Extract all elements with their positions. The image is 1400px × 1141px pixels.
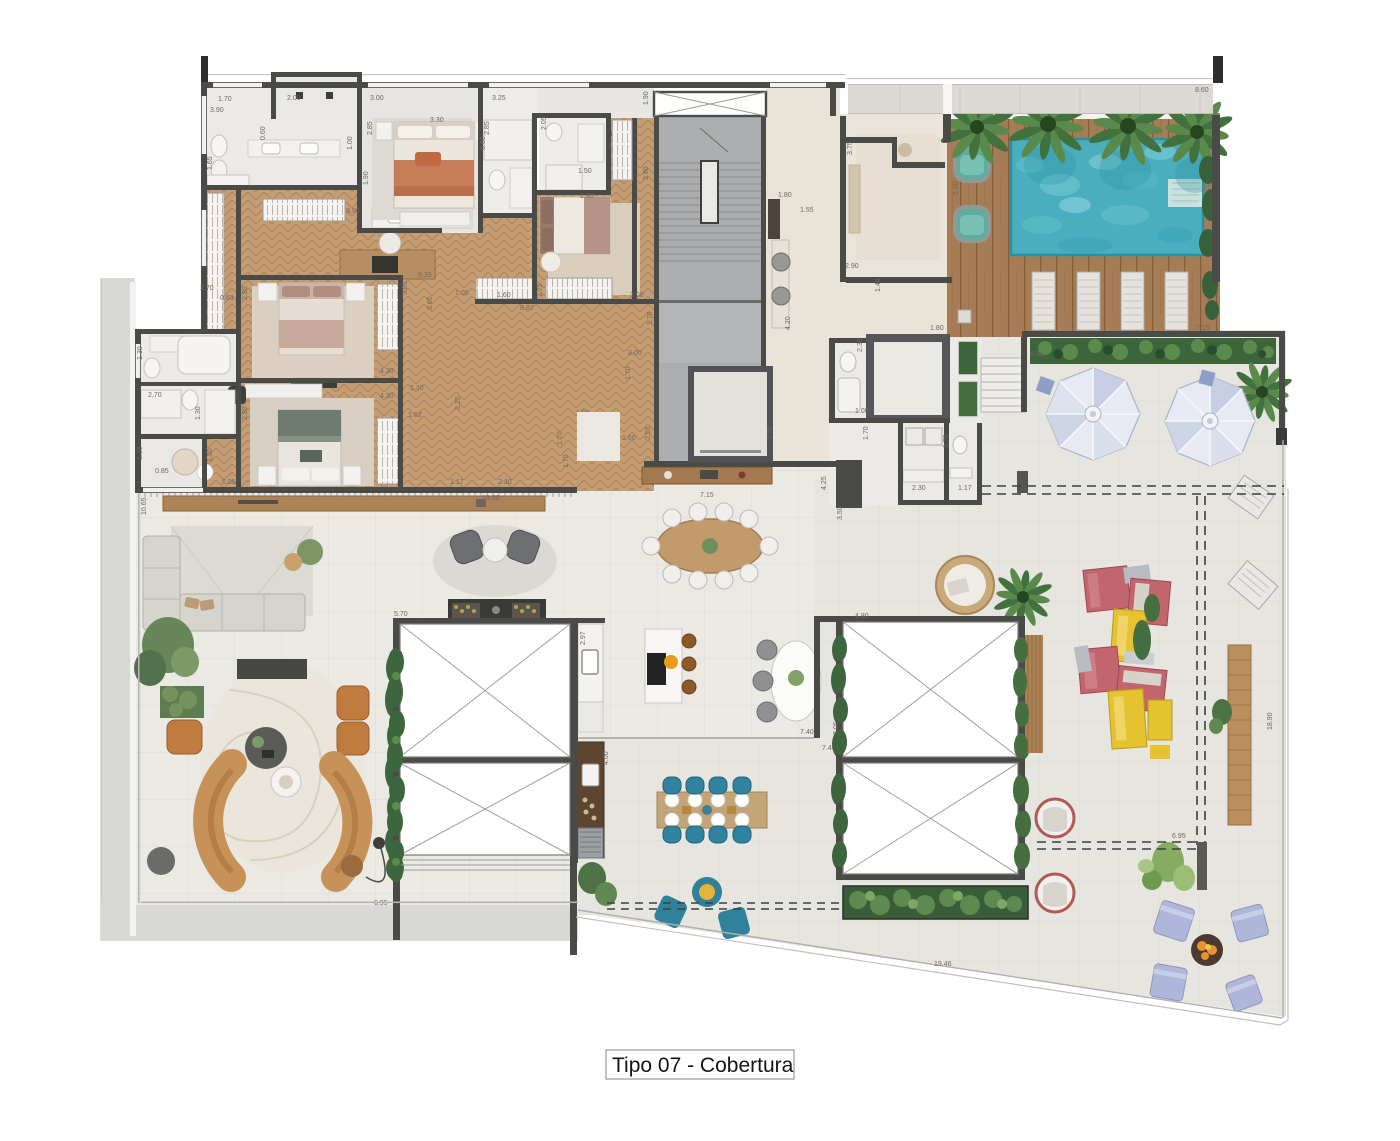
svg-text:Tipo 07 - Cobertura: Tipo 07 - Cobertura bbox=[612, 1054, 794, 1077]
svg-text:1.70: 1.70 bbox=[557, 431, 564, 445]
svg-text:2.90: 2.90 bbox=[845, 263, 859, 270]
svg-text:10.65: 10.65 bbox=[141, 497, 148, 515]
svg-text:6.35: 6.35 bbox=[418, 272, 432, 279]
svg-text:2.80: 2.80 bbox=[242, 286, 249, 300]
svg-text:1.60: 1.60 bbox=[580, 193, 594, 200]
svg-text:4.25: 4.25 bbox=[821, 476, 828, 490]
svg-text:1.80: 1.80 bbox=[930, 325, 944, 332]
svg-text:3.50: 3.50 bbox=[837, 506, 844, 520]
svg-text:1.70: 1.70 bbox=[863, 426, 870, 440]
svg-text:6.95: 6.95 bbox=[1030, 351, 1044, 358]
svg-text:7.15: 7.15 bbox=[1196, 325, 1210, 332]
svg-text:5.70: 5.70 bbox=[394, 611, 408, 618]
svg-text:1.00: 1.00 bbox=[455, 290, 469, 297]
svg-text:2.75: 2.75 bbox=[537, 283, 544, 297]
svg-text:1.00: 1.00 bbox=[855, 408, 869, 415]
svg-text:2.70: 2.70 bbox=[200, 285, 214, 292]
svg-text:3.85: 3.85 bbox=[402, 281, 409, 295]
svg-text:1.00: 1.00 bbox=[347, 136, 354, 150]
svg-text:1.70: 1.70 bbox=[943, 434, 950, 448]
svg-text:2.85: 2.85 bbox=[367, 121, 374, 135]
svg-text:1.35: 1.35 bbox=[137, 446, 144, 460]
svg-text:1.62: 1.62 bbox=[408, 412, 422, 419]
svg-text:3.90: 3.90 bbox=[210, 107, 224, 114]
svg-text:1.40: 1.40 bbox=[875, 278, 882, 292]
svg-text:1.70: 1.70 bbox=[625, 366, 632, 380]
svg-text:19.30: 19.30 bbox=[482, 495, 500, 502]
svg-text:2.85: 2.85 bbox=[484, 121, 491, 135]
svg-text:4.30: 4.30 bbox=[380, 393, 394, 400]
svg-text:1.17: 1.17 bbox=[450, 479, 464, 486]
svg-text:7.40: 7.40 bbox=[800, 729, 814, 736]
svg-text:1.30: 1.30 bbox=[207, 448, 214, 462]
svg-text:4.80: 4.80 bbox=[855, 613, 869, 620]
svg-text:1.55: 1.55 bbox=[800, 207, 814, 214]
svg-text:6.05: 6.05 bbox=[222, 479, 236, 486]
svg-text:1.30: 1.30 bbox=[410, 385, 424, 392]
svg-text:1.90: 1.90 bbox=[363, 171, 370, 185]
svg-text:1.30: 1.30 bbox=[137, 346, 144, 360]
svg-text:2.97: 2.97 bbox=[580, 631, 587, 645]
svg-text:2.00: 2.00 bbox=[287, 95, 301, 102]
svg-text:4.20: 4.20 bbox=[785, 316, 792, 330]
svg-text:3.80: 3.80 bbox=[643, 166, 650, 180]
svg-text:3.75: 3.75 bbox=[847, 141, 854, 155]
svg-text:3.25: 3.25 bbox=[492, 95, 506, 102]
svg-text:0.63: 0.63 bbox=[220, 295, 234, 302]
svg-text:2.70: 2.70 bbox=[148, 392, 162, 399]
svg-text:3.90: 3.90 bbox=[346, 208, 360, 215]
svg-text:3.65: 3.65 bbox=[427, 296, 434, 310]
svg-text:0.85: 0.85 bbox=[155, 468, 169, 475]
svg-text:19.46: 19.46 bbox=[934, 961, 952, 968]
svg-text:1.65: 1.65 bbox=[207, 156, 214, 170]
svg-text:1.30: 1.30 bbox=[195, 406, 202, 420]
svg-text:2.55: 2.55 bbox=[645, 426, 652, 440]
svg-text:8.60: 8.60 bbox=[1195, 87, 1209, 94]
svg-text:4.00: 4.00 bbox=[603, 751, 610, 765]
svg-text:1.90: 1.90 bbox=[643, 91, 650, 105]
svg-text:5.80: 5.80 bbox=[953, 181, 960, 195]
svg-text:3.25: 3.25 bbox=[455, 396, 462, 410]
svg-text:2.30: 2.30 bbox=[912, 485, 926, 492]
svg-text:3.30: 3.30 bbox=[430, 117, 444, 124]
svg-text:1.70: 1.70 bbox=[563, 454, 570, 468]
svg-text:1.70: 1.70 bbox=[647, 311, 654, 325]
svg-text:2.30: 2.30 bbox=[857, 338, 864, 352]
svg-text:2.05: 2.05 bbox=[541, 116, 548, 130]
svg-text:0.60: 0.60 bbox=[260, 126, 267, 140]
svg-text:1.60: 1.60 bbox=[497, 292, 511, 299]
svg-text:2.80: 2.80 bbox=[242, 406, 249, 420]
svg-text:18.90: 18.90 bbox=[1267, 712, 1274, 730]
svg-text:2.55: 2.55 bbox=[767, 426, 774, 440]
svg-text:8.82: 8.82 bbox=[520, 305, 534, 312]
svg-text:3.00: 3.00 bbox=[628, 350, 642, 357]
svg-text:1.60: 1.60 bbox=[622, 435, 636, 442]
svg-text:2.30: 2.30 bbox=[498, 479, 512, 486]
svg-text:1.80: 1.80 bbox=[778, 192, 792, 199]
svg-text:1.50: 1.50 bbox=[578, 168, 592, 175]
svg-text:6.95: 6.95 bbox=[1172, 833, 1186, 840]
svg-text:7.15: 7.15 bbox=[700, 492, 714, 499]
svg-text:1.70: 1.70 bbox=[218, 96, 232, 103]
svg-text:4.30: 4.30 bbox=[380, 368, 394, 375]
svg-text:3.00: 3.00 bbox=[630, 292, 644, 299]
svg-text:0.60: 0.60 bbox=[480, 136, 487, 150]
svg-text:3.00: 3.00 bbox=[370, 95, 384, 102]
svg-text:1.17: 1.17 bbox=[958, 485, 972, 492]
svg-text:6.95: 6.95 bbox=[374, 900, 388, 907]
